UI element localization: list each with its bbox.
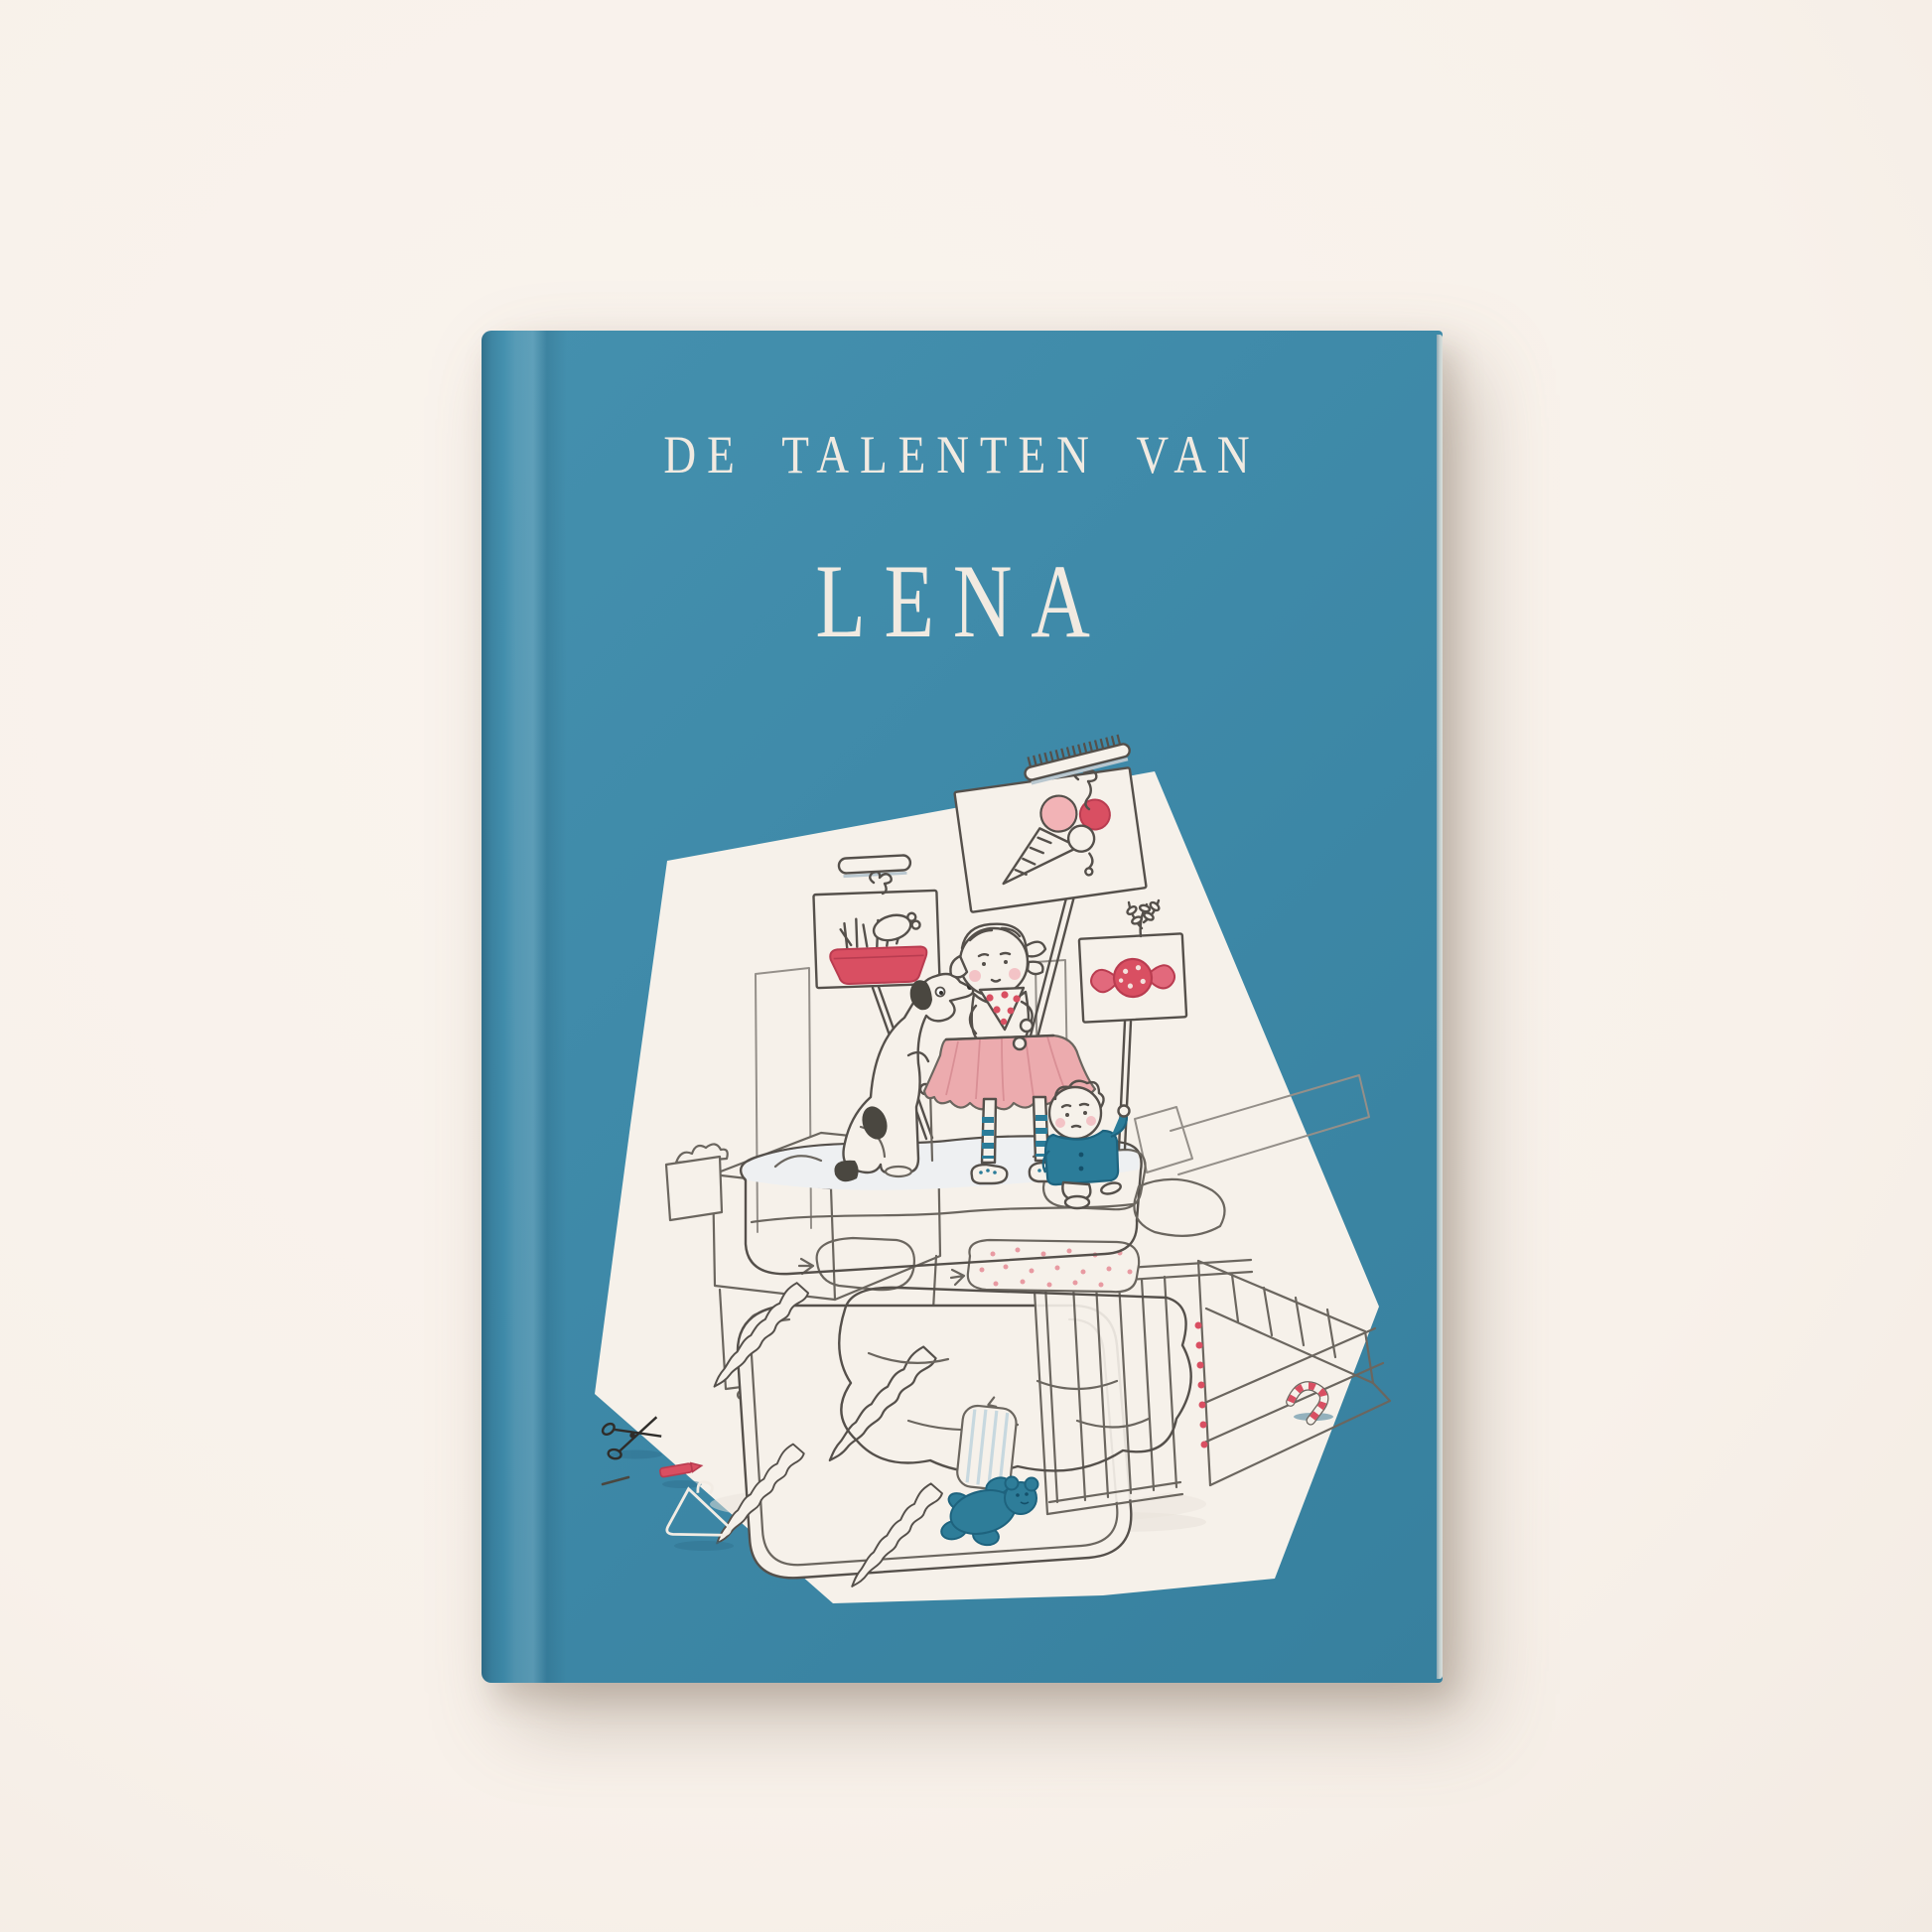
boy-hand — [1119, 1106, 1130, 1117]
series-title: DE TALENTEN VAN — [558, 424, 1365, 485]
page-block-edge — [1437, 335, 1443, 1679]
girl-hand-lower — [1014, 1037, 1026, 1049]
book-title: LENA — [587, 541, 1336, 662]
stick-icon — [603, 1477, 628, 1484]
polka-dot-pillow — [951, 1240, 1139, 1292]
girl-hand-upper — [1021, 1020, 1033, 1032]
cover-illustration — [482, 331, 1443, 1683]
boy-cardigan — [1045, 1131, 1118, 1184]
book-cover: DE TALENTEN VAN LENA — [482, 331, 1443, 1683]
dog-bowl-icon — [830, 946, 927, 984]
book-mockup-scene: DE TALENTEN VAN LENA — [0, 0, 1932, 1932]
